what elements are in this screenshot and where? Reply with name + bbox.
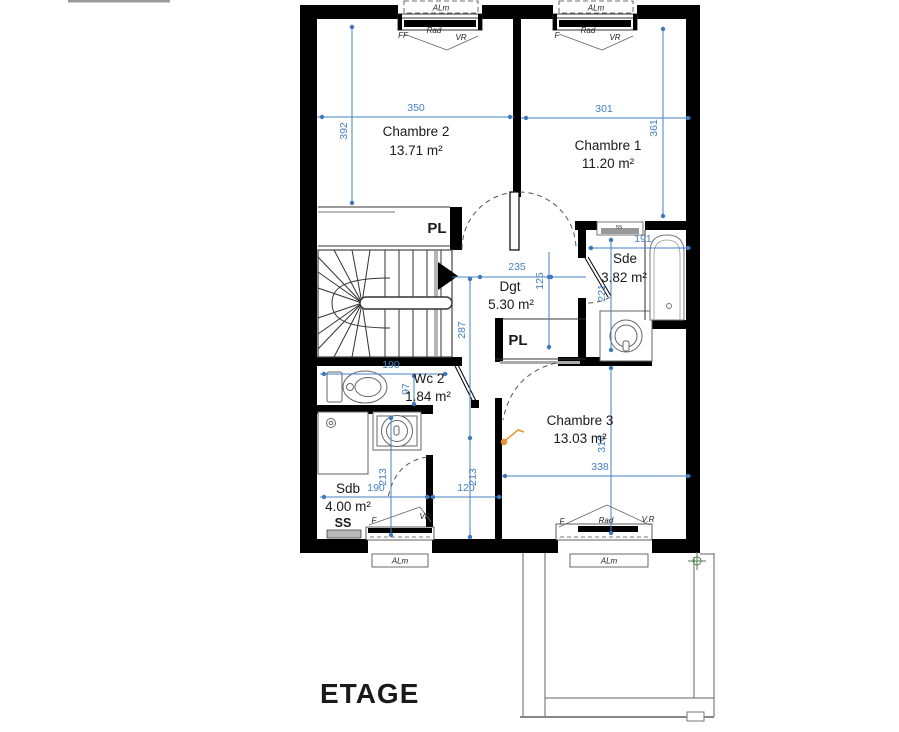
dimension-361: 361 xyxy=(648,27,665,218)
dim-label: 120 xyxy=(457,482,475,494)
dimension-338: 338 xyxy=(502,461,691,478)
room-area-chambre3: 13.03 m² xyxy=(553,431,607,446)
dim-label: 125 xyxy=(534,272,546,290)
floor-title: ETAGE xyxy=(320,678,419,709)
room-label-chambre1: Chambre 1 xyxy=(575,138,642,153)
floor-plan-drawing: ss ALm FF Rad VR xyxy=(0,0,899,732)
room-area-sde: 3.82 m² xyxy=(601,270,647,285)
closet-label-pl-top: PL xyxy=(427,220,446,237)
room-label-chambre3: Chambre 3 xyxy=(547,413,614,428)
dimension-301: 301 xyxy=(521,103,691,120)
dimension-120: 120 xyxy=(430,482,502,499)
room-area-chambre2: 13.71 m² xyxy=(389,143,443,158)
dim-label: 190 xyxy=(367,482,385,494)
dim-label: 235 xyxy=(508,261,526,273)
door-handle-chambre3 xyxy=(501,430,524,445)
page-edge-line xyxy=(68,0,170,3)
door-swing-arc-sdb xyxy=(388,457,427,498)
door-leaf-chambre1 xyxy=(510,192,519,250)
room-area-sdb: 4.00 m² xyxy=(325,499,371,514)
floor-plan-canvas: ss ALm FF Rad VR xyxy=(0,0,899,732)
window-rad-label: Rad xyxy=(599,516,614,525)
dim-label: 301 xyxy=(595,103,613,115)
window-alm-label: ALm xyxy=(600,557,618,566)
shelf-sde-label: ss xyxy=(616,224,623,231)
shelf-sdb xyxy=(327,530,361,538)
toilet xyxy=(327,371,387,403)
dim-label: 190 xyxy=(382,359,400,371)
window-bottom-left: F VR ALm xyxy=(366,507,434,567)
dim-label: 221 xyxy=(596,284,608,302)
door-swing-arc-chambre3 xyxy=(503,363,556,420)
room-area-dgt: 5.30 m² xyxy=(488,297,534,312)
dimension-350: 350 xyxy=(317,102,514,119)
window-f-label: F xyxy=(555,31,561,40)
window-alm-label: ALm xyxy=(587,4,605,13)
washbasin-sde xyxy=(600,311,652,361)
dim-label: 338 xyxy=(591,461,609,473)
stair-handrail xyxy=(360,297,452,309)
room-label-sdb: Sdb xyxy=(336,481,360,496)
staircase xyxy=(318,250,458,357)
room-area-wc2: 1.84 m² xyxy=(405,389,451,404)
window-top-left: ALm FF Rad VR xyxy=(398,1,482,50)
room-area-chambre1: 11.20 m² xyxy=(582,156,635,171)
dim-label: 350 xyxy=(407,102,425,114)
dimension-310: 310 xyxy=(596,366,613,535)
window-rad-label: Rad xyxy=(427,26,442,35)
window-alm-label: ALm xyxy=(432,4,450,13)
closet-label-pl-mid: PL xyxy=(508,332,527,349)
lower-extension-outline xyxy=(520,553,714,721)
dim-label: 287 xyxy=(456,321,468,339)
dimension-235: 235 xyxy=(452,261,586,279)
window-vr-label: VR xyxy=(419,512,430,521)
window-vr-label: VR xyxy=(455,33,466,42)
radiator-icon xyxy=(578,526,638,532)
dim-label: 191 xyxy=(634,233,652,245)
dim-label: 361 xyxy=(648,119,660,137)
window-rad-label: Rad xyxy=(581,26,596,35)
window-alm-label: ALm xyxy=(391,557,409,566)
window-vr-label: V.R xyxy=(642,515,655,524)
window-f-label: F xyxy=(372,516,378,525)
dimension-392: 392 xyxy=(338,25,354,205)
dim-label: 392 xyxy=(338,122,350,140)
survey-marker-icon xyxy=(688,552,706,570)
room-label-wc2: Wc 2 xyxy=(414,371,445,386)
washbasin-sdb xyxy=(373,412,421,450)
window-ff-label: FF xyxy=(398,31,409,40)
shelf-label-sdb-ss: SS xyxy=(335,516,352,530)
window-bottom-right: F Rad V.R ALm xyxy=(556,505,655,567)
window-top-right: ALm F Rad VR xyxy=(553,1,637,50)
room-label-dgt: Dgt xyxy=(499,279,520,294)
room-label-chambre2: Chambre 2 xyxy=(383,124,450,139)
shower-sdb xyxy=(318,412,368,474)
window-vr-label: VR xyxy=(609,33,620,42)
room-label-sde: Sde xyxy=(613,251,637,266)
dimension-125: 125 xyxy=(534,252,551,350)
